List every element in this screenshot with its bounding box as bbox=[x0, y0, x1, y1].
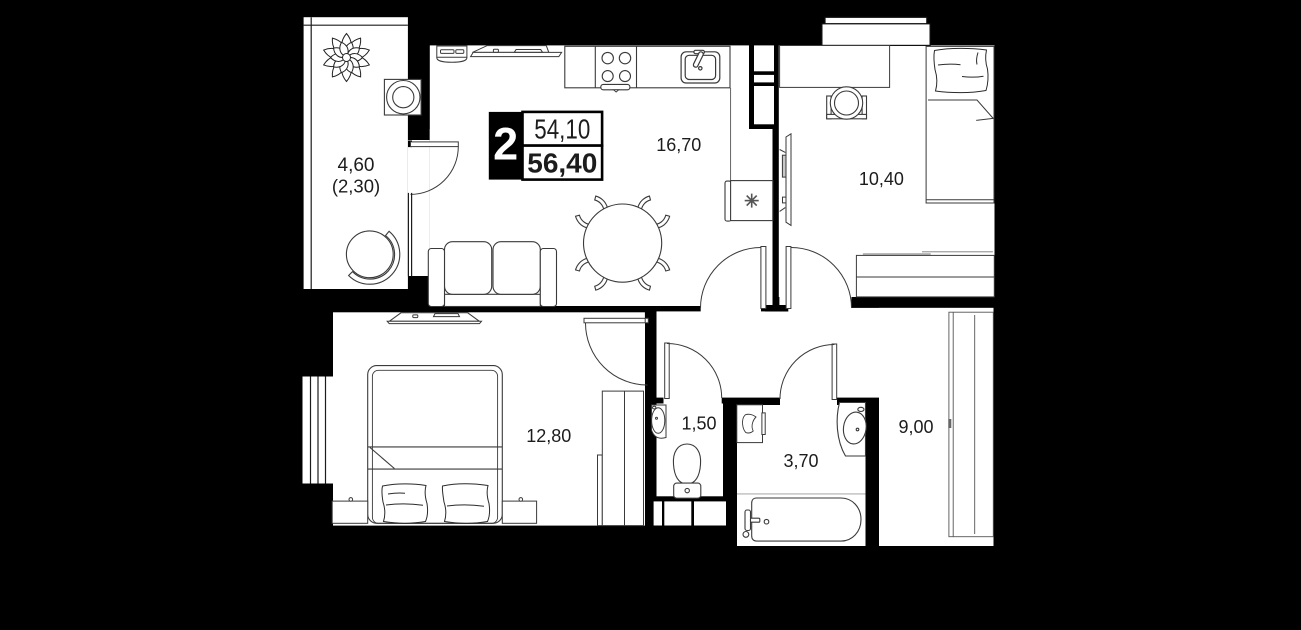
svg-text:3,70: 3,70 bbox=[783, 451, 818, 471]
svg-text:10,40: 10,40 bbox=[859, 169, 904, 189]
svg-text:1,50: 1,50 bbox=[681, 414, 716, 434]
svg-text:56,40: 56,40 bbox=[527, 148, 597, 179]
svg-text:9,00: 9,00 bbox=[898, 417, 933, 437]
svg-text:2: 2 bbox=[493, 119, 518, 170]
svg-text:4,60: 4,60 bbox=[338, 155, 375, 176]
svg-text:54,10: 54,10 bbox=[534, 114, 590, 145]
svg-text:(2,30): (2,30) bbox=[332, 176, 380, 197]
svg-text:16,70: 16,70 bbox=[656, 135, 701, 155]
svg-text:12,80: 12,80 bbox=[526, 426, 571, 446]
